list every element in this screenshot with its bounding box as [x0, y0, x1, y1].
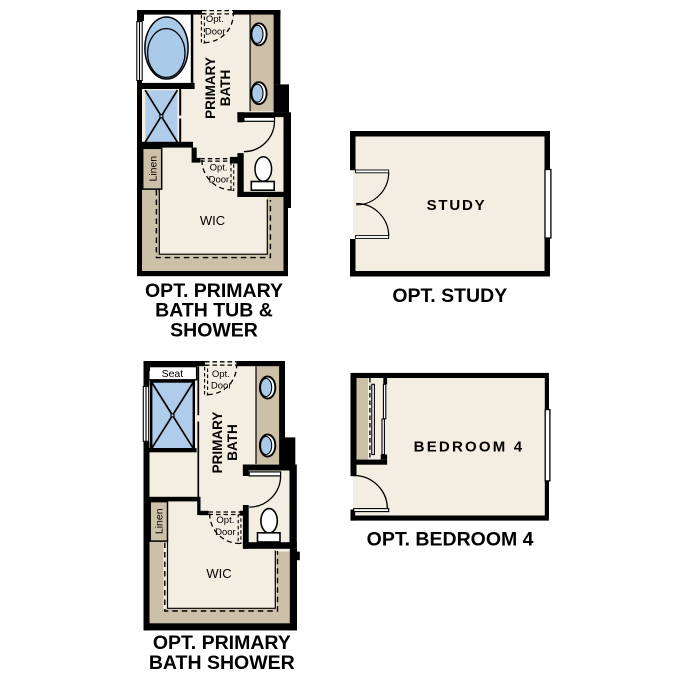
svg-text:Opt.: Opt. [216, 515, 234, 526]
svg-text:PRIMARY: PRIMARY [210, 412, 225, 474]
svg-text:BEDROOM 4: BEDROOM 4 [414, 438, 525, 455]
svg-text:BATH: BATH [218, 70, 233, 107]
svg-text:Linen: Linen [147, 156, 159, 182]
svg-text:OPT. STUDY: OPT. STUDY [392, 285, 507, 307]
svg-text:Door: Door [211, 381, 232, 392]
svg-text:Opt.: Opt. [212, 369, 230, 380]
svg-text:OPT. PRIMARY: OPT. PRIMARY [145, 280, 283, 302]
svg-text:STUDY: STUDY [427, 197, 487, 214]
svg-text:BATH: BATH [225, 424, 240, 461]
svg-text:SHOWER: SHOWER [170, 320, 258, 342]
svg-text:OPT. BEDROOM 4: OPT. BEDROOM 4 [367, 528, 534, 550]
svg-text:Door: Door [209, 175, 230, 186]
svg-text:WIC: WIC [206, 566, 231, 581]
svg-text:OPT. PRIMARY: OPT. PRIMARY [153, 632, 291, 654]
svg-text:Linen: Linen [154, 508, 166, 534]
svg-text:PRIMARY: PRIMARY [203, 57, 218, 119]
svg-text:Seat: Seat [162, 368, 184, 380]
svg-text:Door: Door [205, 27, 226, 38]
svg-text:BATH SHOWER: BATH SHOWER [149, 652, 295, 674]
svg-text:Door: Door [215, 527, 236, 538]
svg-text:Opt.: Opt. [206, 14, 224, 25]
svg-text:WIC: WIC [200, 213, 225, 228]
svg-text:BATH TUB &: BATH TUB & [155, 300, 273, 322]
svg-text:Opt.: Opt. [210, 163, 228, 174]
